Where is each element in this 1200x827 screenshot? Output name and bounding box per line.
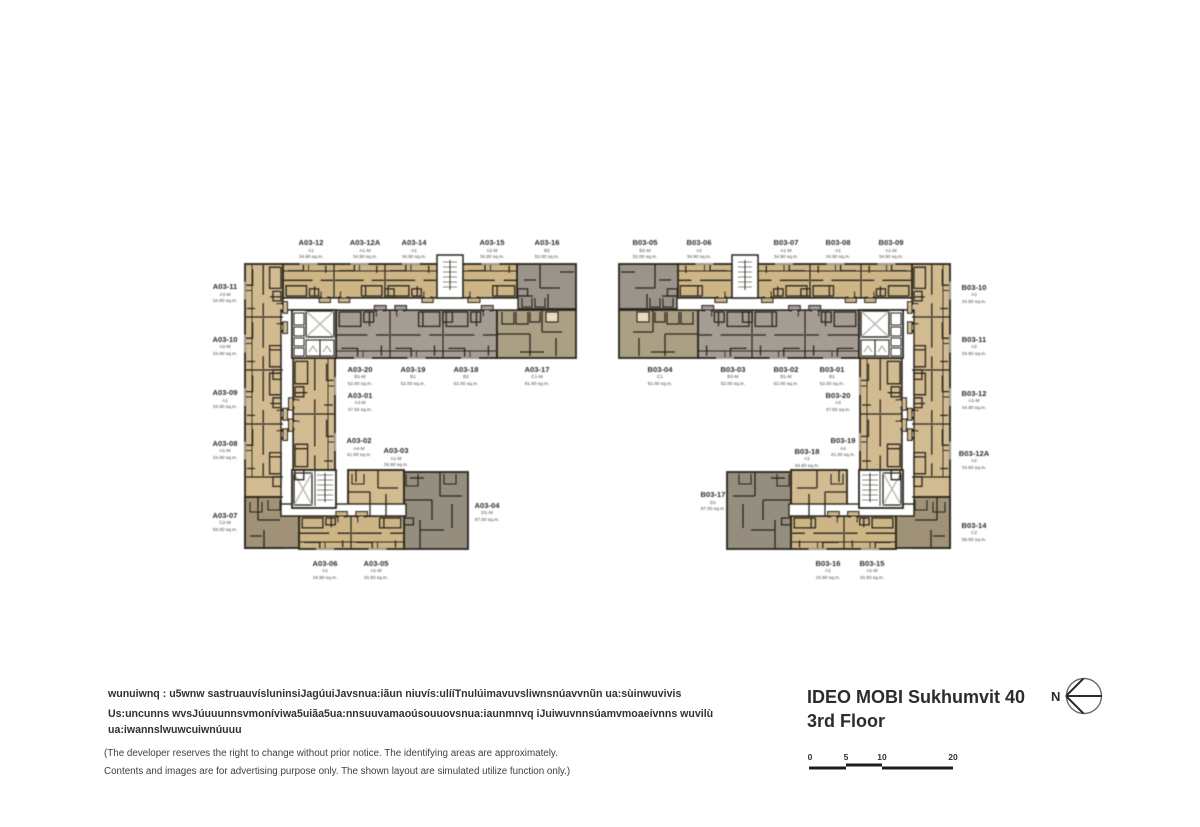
svg-text:(The developer reserves the ri: (The developer reserves the right to cha…	[104, 748, 558, 759]
svg-text:Us:uncunns wvsJúuuunnsvmoníviw: Us:uncunns wvsJúuuunnsvmoníviwa5uiãa5ua:…	[108, 708, 713, 720]
svg-text:3rd Floor: 3rd Floor	[807, 711, 885, 731]
svg-text:10: 10	[877, 752, 887, 762]
svg-text:0: 0	[808, 752, 813, 762]
svg-text:wunuiwnq : u5wnw sastruauvíslu: wunuiwnq : u5wnw sastruauvísluninsiJagúu…	[107, 688, 681, 700]
svg-text:5: 5	[844, 752, 849, 762]
svg-text:IDEO MOBI Sukhumvit 40: IDEO MOBI Sukhumvit 40	[807, 687, 1025, 707]
svg-text:Contents and images are for ad: Contents and images are for advertising …	[104, 766, 570, 777]
svg-text:ua:iwannslwuwcuiwnúuuu: ua:iwannslwuwcuiwnúuuu	[108, 724, 242, 736]
svg-text:N: N	[1051, 689, 1060, 704]
svg-text:20: 20	[948, 752, 958, 762]
